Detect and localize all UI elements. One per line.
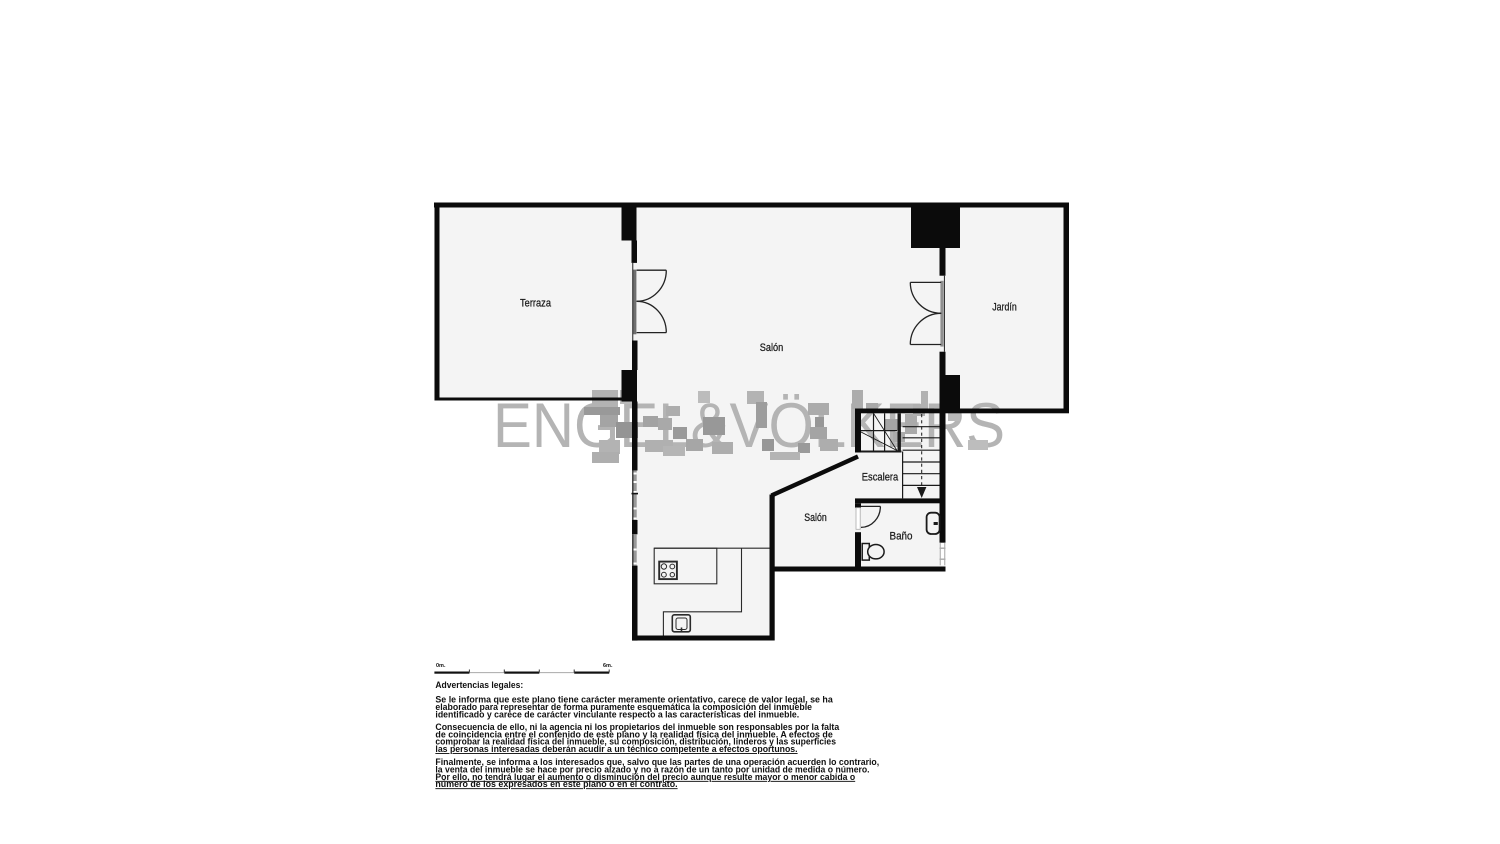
svg-text:6m.: 6m. [603, 663, 613, 669]
svg-text:Advertencias legales:: Advertencias legales: [435, 680, 523, 690]
svg-text:Baño: Baño [890, 530, 913, 542]
svg-text:Escalera: Escalera [862, 472, 899, 484]
svg-text:Terraza: Terraza [520, 298, 552, 310]
svg-text:las personas interesadas deber: las personas interesadas deberán acudir … [435, 744, 797, 754]
svg-text:número de los expresados en es: número de los expresados en este plano o… [435, 779, 677, 789]
svg-text:Salón: Salón [760, 342, 784, 354]
svg-text:Jardín: Jardín [992, 302, 1017, 314]
svg-text:0m.: 0m. [436, 663, 446, 669]
svg-text:identificado y carece de carác: identificado y carece de carácter vincul… [435, 709, 799, 719]
svg-text:Salón: Salón [804, 512, 827, 524]
